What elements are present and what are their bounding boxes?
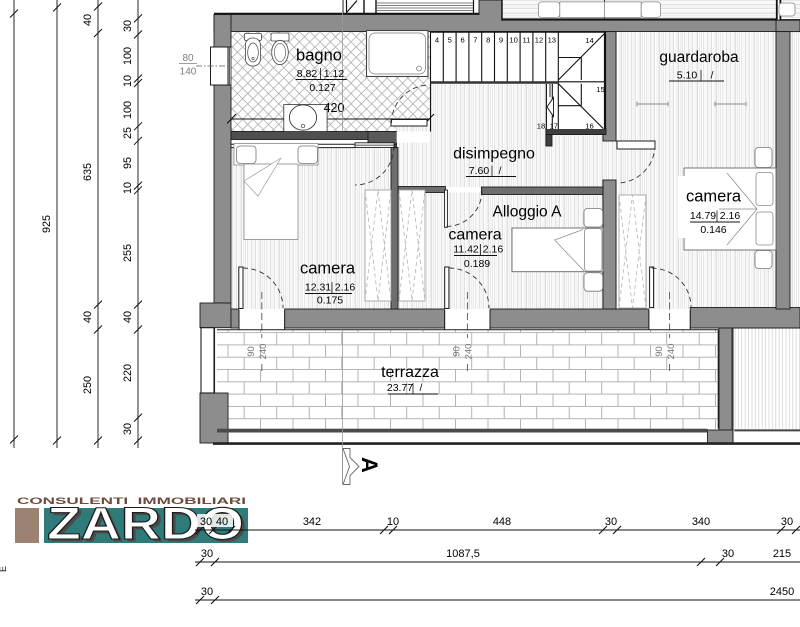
svg-text:12.31: 12.31 (305, 282, 331, 294)
svg-text:0.189: 0.189 (464, 258, 490, 270)
svg-text:2450: 2450 (770, 586, 794, 598)
svg-text:14.79: 14.79 (690, 210, 716, 222)
svg-text:camera: camera (300, 260, 356, 278)
svg-text:30: 30 (605, 516, 617, 528)
svg-text:40: 40 (82, 14, 94, 26)
svg-text:240: 240 (258, 344, 269, 360)
svg-text:30: 30 (122, 20, 134, 32)
svg-text:18: 18 (537, 122, 545, 131)
svg-text:342: 342 (303, 516, 321, 528)
svg-text:340: 340 (692, 516, 710, 528)
svg-text:10: 10 (387, 516, 399, 528)
svg-text:925: 925 (41, 215, 53, 233)
svg-text:40: 40 (122, 311, 134, 323)
svg-text:camera: camera (448, 227, 501, 244)
svg-text:95: 95 (122, 157, 134, 169)
svg-text:220: 220 (122, 364, 134, 382)
svg-text:17: 17 (550, 122, 558, 131)
svg-text:240: 240 (464, 344, 475, 360)
svg-text:1087,5: 1087,5 (446, 548, 480, 560)
svg-text:11.42: 11.42 (453, 244, 479, 256)
svg-text:255: 255 (122, 244, 134, 262)
svg-text:7: 7 (473, 36, 477, 45)
svg-text:9: 9 (499, 36, 503, 45)
svg-text:2.16: 2.16 (335, 282, 356, 294)
svg-text:5: 5 (448, 36, 452, 45)
svg-text:terrazza: terrazza (381, 364, 439, 381)
svg-text:250: 250 (82, 376, 94, 394)
svg-text:0.146: 0.146 (700, 224, 726, 236)
svg-text:240: 240 (666, 344, 677, 360)
svg-text:1.12: 1.12 (324, 68, 345, 80)
svg-text:40: 40 (216, 516, 228, 528)
svg-text:14: 14 (585, 36, 593, 45)
svg-text:2.16: 2.16 (720, 210, 741, 222)
svg-text:30: 30 (200, 516, 212, 528)
svg-text:8: 8 (486, 36, 490, 45)
svg-text:90: 90 (452, 346, 463, 357)
svg-text:10: 10 (122, 75, 134, 87)
svg-text:11: 11 (522, 36, 530, 45)
svg-text:100: 100 (122, 101, 134, 119)
svg-text:40: 40 (82, 311, 94, 323)
svg-text:30: 30 (781, 516, 793, 528)
svg-text:90: 90 (654, 346, 665, 357)
svg-text:A: A (357, 457, 382, 473)
svg-text:8.82: 8.82 (297, 68, 318, 80)
svg-text:15: 15 (596, 85, 604, 94)
svg-text:10: 10 (122, 182, 134, 194)
svg-text:/: / (711, 70, 714, 82)
svg-text:25: 25 (122, 127, 134, 139)
svg-text:100: 100 (122, 47, 134, 65)
svg-text:/: / (499, 165, 502, 177)
svg-text:16: 16 (585, 122, 593, 131)
svg-text:7.60: 7.60 (469, 165, 490, 177)
svg-text:635: 635 (82, 163, 94, 181)
svg-text:448: 448 (493, 516, 511, 528)
svg-text:/: / (420, 382, 423, 394)
svg-text:6: 6 (460, 36, 464, 45)
svg-text:30: 30 (201, 548, 213, 560)
svg-text:2.16: 2.16 (483, 244, 504, 256)
svg-text:215: 215 (773, 548, 791, 560)
svg-text:4: 4 (435, 36, 439, 45)
svg-text:E: E (0, 566, 8, 572)
svg-text:guardaroba: guardaroba (659, 49, 739, 66)
svg-text:10: 10 (509, 36, 517, 45)
svg-text:30: 30 (201, 586, 213, 598)
svg-text:140: 140 (180, 67, 197, 78)
svg-text:80: 80 (182, 53, 194, 64)
svg-text:13: 13 (548, 36, 556, 45)
svg-text:12: 12 (535, 36, 543, 45)
svg-text:camera: camera (686, 188, 742, 206)
svg-text:0.127: 0.127 (309, 82, 335, 94)
svg-text:0.175: 0.175 (317, 295, 343, 307)
svg-text:30: 30 (122, 423, 134, 435)
svg-text:5.10: 5.10 (677, 70, 698, 82)
svg-text:420: 420 (324, 101, 345, 115)
svg-text:30: 30 (722, 548, 734, 560)
svg-text:Alloggio A: Alloggio A (493, 204, 563, 221)
svg-text:bagno: bagno (296, 47, 342, 65)
svg-text:disimpegno: disimpegno (453, 146, 535, 163)
svg-text:23.77: 23.77 (387, 382, 413, 394)
svg-text:90: 90 (246, 346, 257, 357)
